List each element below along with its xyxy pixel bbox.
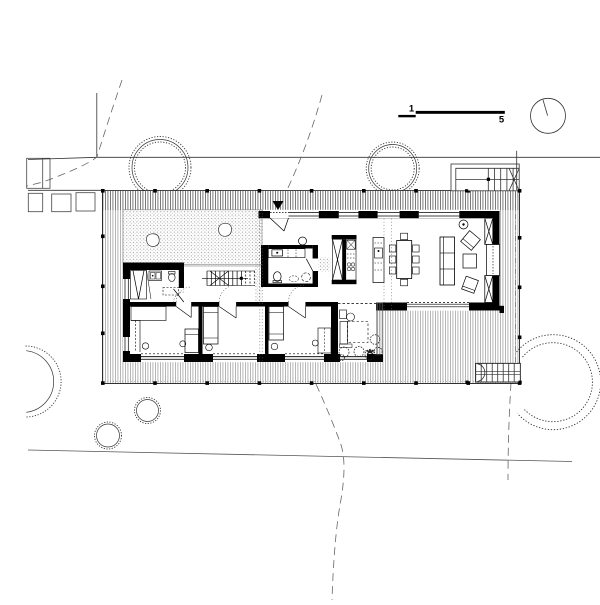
svg-text:5: 5 — [499, 115, 505, 126]
svg-text:1: 1 — [409, 103, 415, 114]
